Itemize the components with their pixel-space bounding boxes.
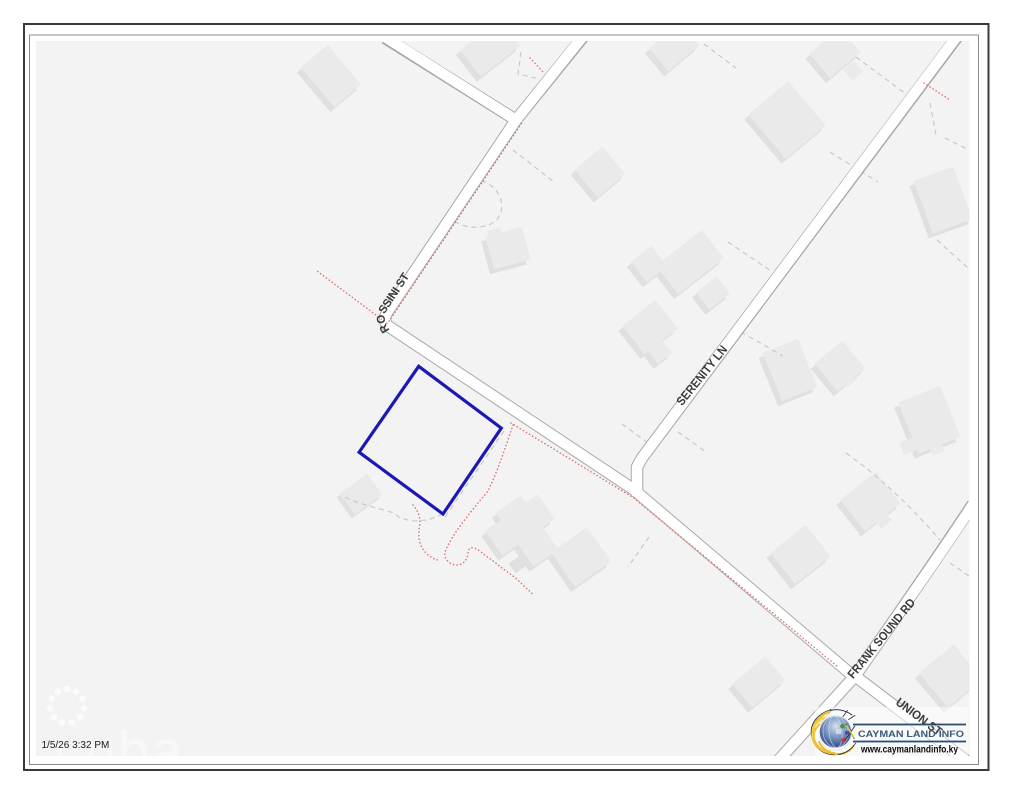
svg-text:CAYMAN LAND INFO: CAYMAN LAND INFO xyxy=(858,729,964,739)
svg-text:www.caymanlandinfo.ky: www.caymanlandinfo.ky xyxy=(860,745,958,756)
svg-text:1/5/26 3:32 PM: 1/5/26 3:32 PM xyxy=(42,740,110,751)
